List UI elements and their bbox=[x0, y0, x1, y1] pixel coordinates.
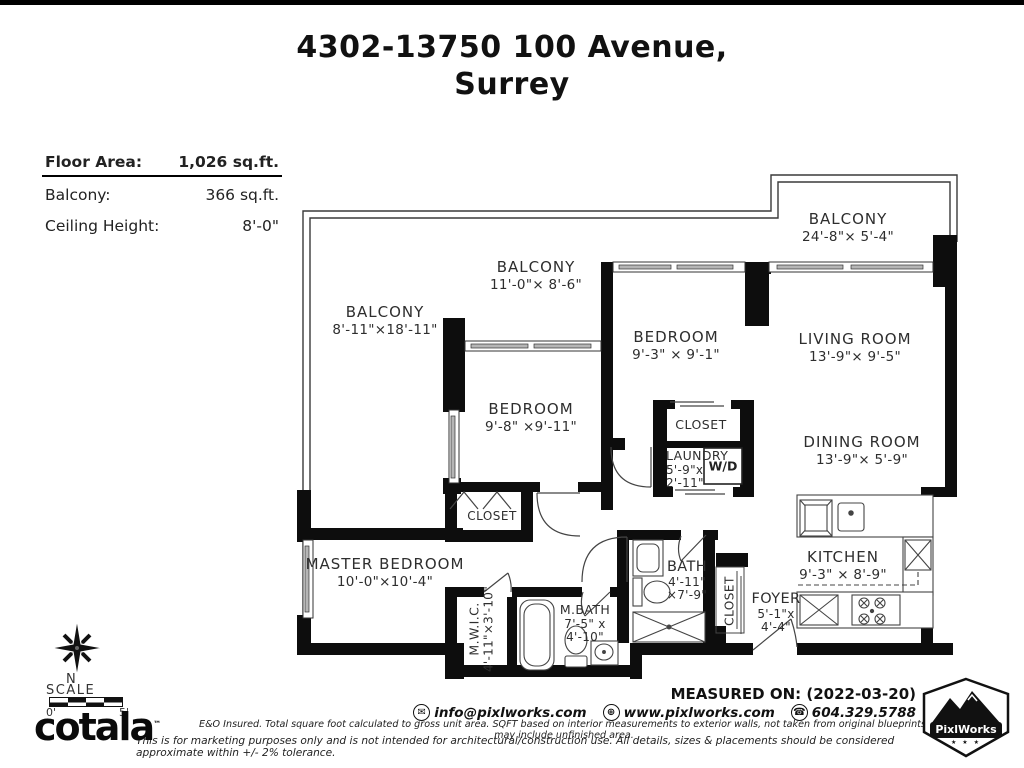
room-label-closet-hall: CLOSET bbox=[467, 509, 517, 524]
floor-area-value: 1,026 sq.ft. bbox=[178, 153, 279, 171]
measured-on-text: MEASURED ON: (2022-03-20) bbox=[671, 685, 916, 703]
room-label-living: LIVING ROOM 13'-9"× 9'-5" bbox=[798, 330, 911, 366]
scale-label: SCALE bbox=[46, 683, 95, 698]
title-line1: 4302-13750 100 Avenue, bbox=[0, 30, 1024, 67]
page-title: 4302-13750 100 Avenue, Surrey bbox=[0, 30, 1024, 103]
title-line2: Surrey bbox=[0, 67, 1024, 104]
room-label-balcony-right: BALCONY 24'-8"× 5'-4" bbox=[802, 210, 894, 246]
top-border bbox=[0, 0, 1024, 5]
compass-rose-icon bbox=[40, 618, 116, 680]
room-label-mwic: M.W.I.C. 4'-11"×3'-10" bbox=[467, 586, 496, 672]
balcony-value: 366 sq.ft. bbox=[205, 186, 279, 204]
room-label-mbath: M.BATH 7'-5" x 4'-10" bbox=[560, 602, 610, 644]
room-label-closet-bedroom: CLOSET bbox=[675, 417, 727, 433]
trademark-symbol: ™ bbox=[153, 719, 161, 728]
balcony-row: Balcony: 366 sq.ft. bbox=[42, 186, 282, 208]
washer-dryer-label: W/D bbox=[709, 459, 738, 474]
ceiling-value: 8'-0" bbox=[242, 217, 279, 235]
area-info-table: Floor Area: 1,026 sq.ft. Balcony: 366 sq… bbox=[42, 153, 282, 248]
ceiling-label: Ceiling Height: bbox=[45, 217, 159, 235]
ceiling-row: Ceiling Height: 8'-0" bbox=[42, 217, 282, 239]
room-label-bedroom-right: BEDROOM 9'-3" × 9'-1" bbox=[632, 328, 720, 364]
cotala-logo: cotala™ bbox=[34, 708, 161, 746]
room-label-master: MASTER BEDROOM 10'-0"×10'-4" bbox=[306, 555, 465, 591]
room-label-kitchen: KITCHEN 9'-3" × 8'-9" bbox=[799, 548, 887, 584]
floorplan-drawing bbox=[0, 0, 1024, 768]
floorplan-page: 4302-13750 100 Avenue, Surrey Floor Area… bbox=[0, 0, 1024, 768]
room-label-balcony-top: BALCONY 11'-0"× 8'-6" bbox=[490, 258, 582, 294]
doors bbox=[484, 447, 797, 650]
room-label-foyer: FOYER 5'-1"x 4'-4" bbox=[751, 590, 800, 635]
balcony-label: Balcony: bbox=[45, 186, 111, 204]
disclaimer-line2: This is for marketing purposes only and … bbox=[136, 735, 918, 759]
pixlworks-stars: ★ ★ ★ bbox=[930, 739, 1002, 746]
floor-area-label: Floor Area: bbox=[45, 153, 142, 171]
room-label-bedroom-mid: BEDROOM 9'-8" ×9'-11" bbox=[485, 400, 577, 436]
pixlworks-logo bbox=[916, 676, 1016, 762]
room-label-bath: BATH 4'-11" ×7'-9" bbox=[667, 558, 707, 603]
room-label-dining: DINING ROOM 13'-9"× 5'-9" bbox=[803, 433, 920, 469]
room-label-closet-foyer: CLOSET bbox=[723, 576, 738, 626]
pixlworks-name: PixlWorks bbox=[930, 723, 1002, 736]
floor-area-row: Floor Area: 1,026 sq.ft. bbox=[42, 153, 282, 177]
room-label-balcony-left: BALCONY 8'-11"×18'-11" bbox=[332, 303, 437, 339]
